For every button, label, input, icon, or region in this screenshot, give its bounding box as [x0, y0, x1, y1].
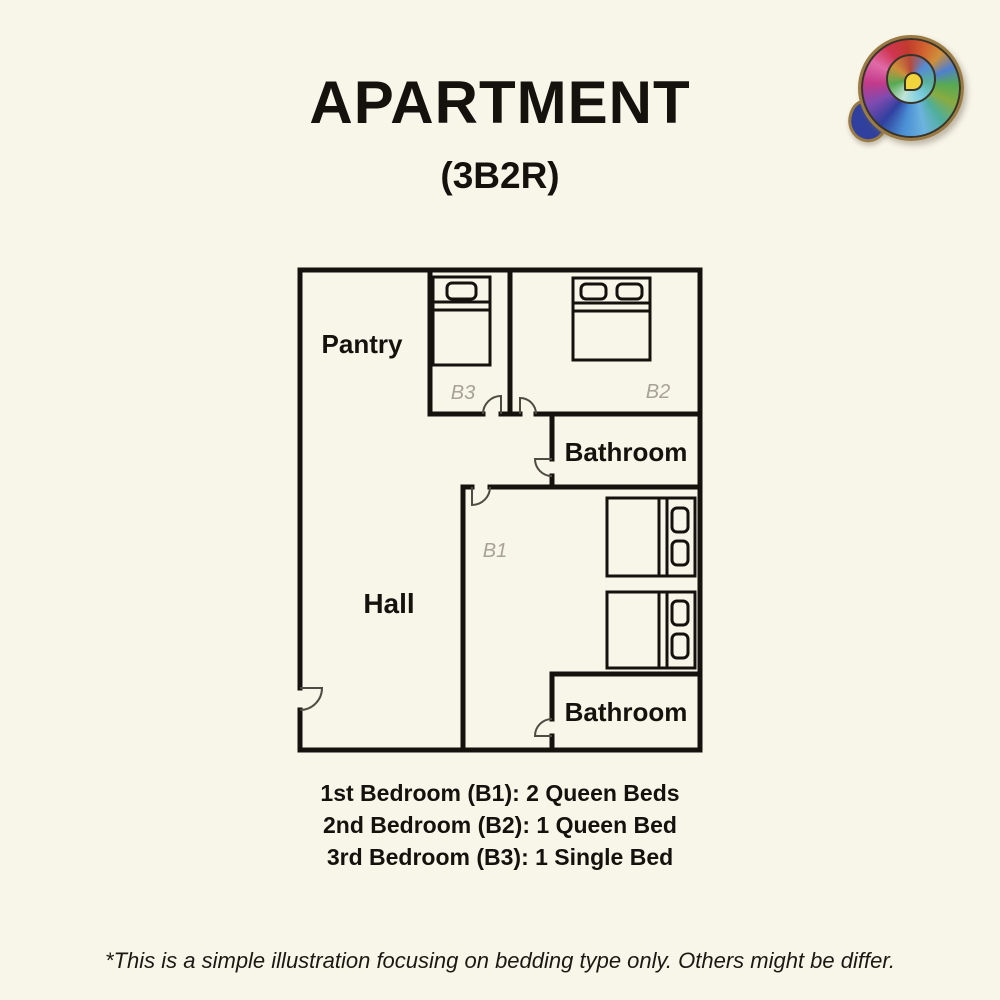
bed-legend: 1st Bedroom (B1): 2 Queen Beds 2nd Bedro…	[0, 777, 1000, 873]
b1-upper-pillow-bottom	[672, 541, 688, 565]
b1-queen-bed-upper	[607, 498, 695, 576]
bathroom-lower-door-arc	[535, 719, 552, 736]
room-code-b1: B1	[483, 540, 507, 562]
footnote: *This is a simple illustration focusing …	[0, 948, 1000, 974]
b3-single-bed	[433, 277, 490, 365]
b1-queen-bed-lower	[607, 592, 695, 668]
b1-upper-pillow-top	[672, 508, 688, 532]
b1-door-arc	[472, 487, 490, 505]
room-label-pantry: Pantry	[322, 329, 403, 359]
b1-lower-pillow-top	[672, 601, 688, 625]
room-label-bathroom-lower: Bathroom	[565, 697, 688, 727]
page: APARTMENT (3B2R)	[0, 0, 1000, 1000]
b2-queen-bed	[573, 278, 650, 360]
b3-pillow	[447, 283, 476, 299]
legend-line-b1: 1st Bedroom (B1): 2 Queen Beds	[0, 777, 1000, 809]
room-code-b3: B3	[451, 382, 475, 404]
b2-pillow-right	[617, 284, 642, 299]
legend-line-b3: 3rd Bedroom (B3): 1 Single Bed	[0, 841, 1000, 873]
b3-door-arc	[483, 396, 501, 414]
hall-entry-door-arc	[300, 688, 322, 710]
room-label-bathroom-upper: Bathroom	[565, 437, 688, 467]
room-code-b2: B2	[646, 381, 670, 403]
b2-pillow-left	[581, 284, 606, 299]
legend-line-b2: 2nd Bedroom (B2): 1 Queen Bed	[0, 809, 1000, 841]
b1-lower-pillow-bottom	[672, 634, 688, 658]
room-label-hall: Hall	[363, 588, 414, 619]
bathroom-upper-door-arc	[535, 459, 552, 476]
